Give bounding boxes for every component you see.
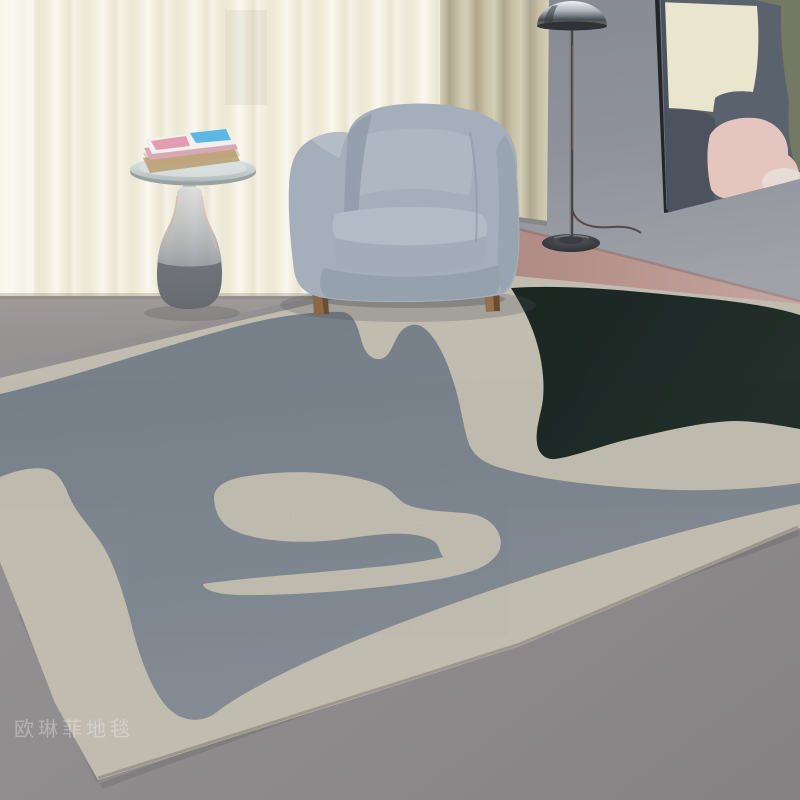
lamp-base-hub	[559, 236, 583, 244]
armchair	[280, 103, 536, 322]
brand-watermark: 欧琳菲地毯	[14, 717, 134, 741]
living-room-photo: 欧琳菲地毯	[0, 0, 800, 800]
window-silhouette	[225, 10, 267, 105]
window-light-strip	[0, 0, 34, 296]
armchair-backrest	[350, 128, 473, 196]
lamp-shade-rim	[537, 22, 607, 31]
scene-canvas: 欧琳菲地毯	[0, 0, 800, 800]
table-glass-base-dark	[157, 262, 222, 309]
armchair-seat-cushion	[332, 207, 487, 246]
